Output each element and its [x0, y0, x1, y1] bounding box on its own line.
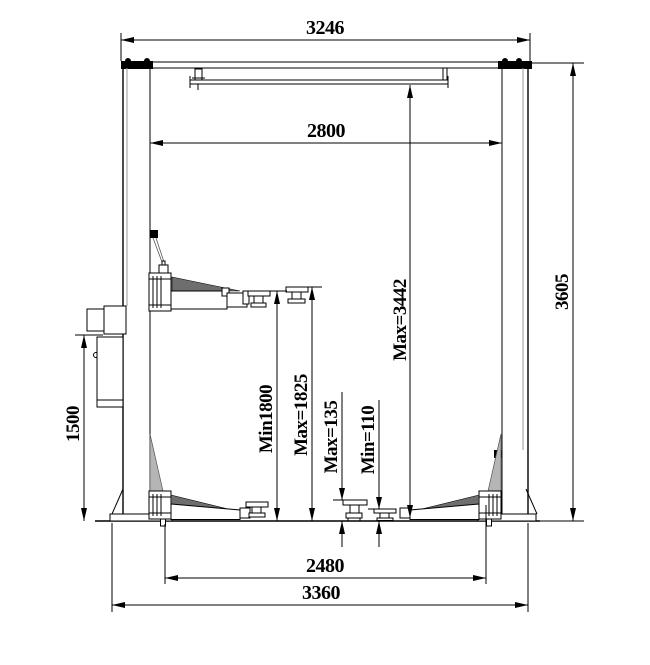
dim-inner-base-span-label: 2480 [306, 555, 345, 577]
dim-clear-width: 2800 [150, 120, 502, 146]
lift-dimension-diagram: 3246 2800 3605 Max=3442 Min1800 Max=1825 [0, 0, 650, 665]
dim-pad-height-min-label: Min=110 [358, 406, 379, 475]
floor-pad-min [374, 509, 396, 521]
floor-pad-max [343, 500, 367, 521]
lift-pad-max-position [286, 287, 308, 303]
dim-top-beam-width: 3246 [121, 17, 530, 61]
overhead-safety-bar [190, 68, 448, 90]
right-post [478, 68, 537, 526]
dim-outer-base-span-label: 3360 [302, 582, 341, 604]
diagram-canvas: 3246 2800 3605 Max=3442 Min1800 Max=1825 [0, 0, 650, 665]
dim-max-clearance: Max=3442 [390, 85, 413, 518]
dim-overall-height-label: 3605 [552, 274, 573, 310]
right-carriage-lowered [479, 434, 502, 519]
dim-top-beam-width-label: 3246 [306, 17, 345, 39]
top-beam [121, 58, 532, 69]
dim-pad-height-min: Min=110 [358, 400, 382, 547]
dim-pad-height-max: Max=135 [321, 392, 346, 547]
dim-min-pad-rise-label: Min1800 [256, 385, 277, 453]
left-arm-lowered [171, 495, 268, 520]
dim-max-pad-rise: Max=1825 [291, 287, 322, 521]
dim-max-clearance-label: Max=3442 [390, 279, 411, 361]
dim-clear-width-label: 2800 [307, 120, 346, 142]
left-carriage-raised [149, 230, 171, 311]
dim-power-unit-height-label: 1500 [63, 406, 84, 442]
dim-max-pad-rise-label: Max=1825 [291, 374, 312, 456]
left-carriage-lowered [149, 434, 171, 519]
dim-pad-height-max-label: Max=135 [321, 401, 342, 474]
power-unit [87, 306, 126, 407]
left-arm-raised [171, 277, 270, 309]
dim-min-pad-rise: Min1800 [256, 291, 287, 521]
dim-overall-height: 3605 [532, 63, 584, 521]
